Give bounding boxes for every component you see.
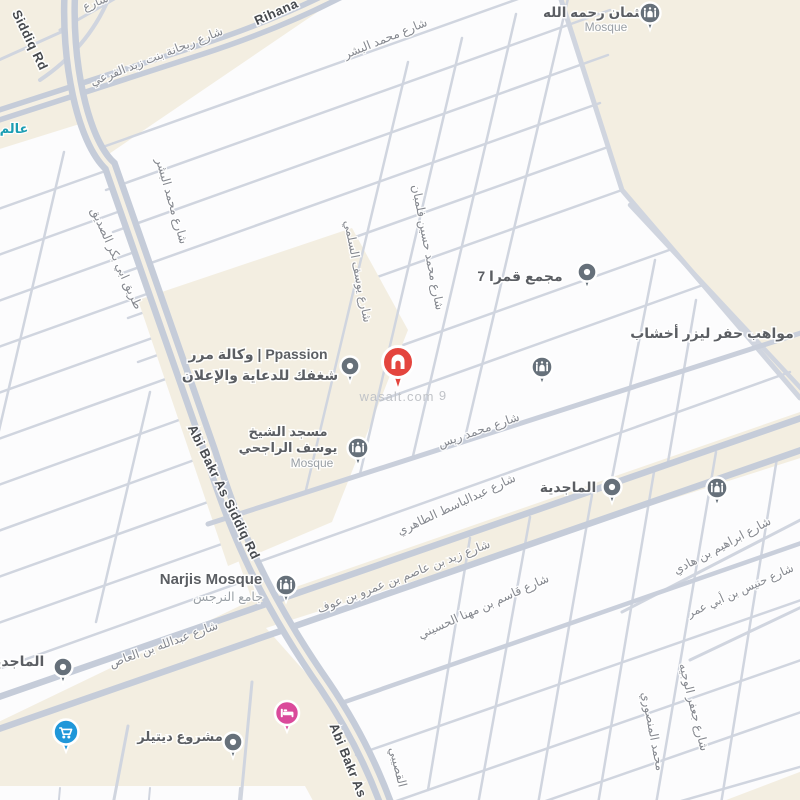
poi-label-majdiyah[interactable]: الماجدية: [540, 479, 597, 495]
wasalt-watermark: wasalt.com: [358, 389, 434, 404]
poi-label-mawaheb[interactable]: مواهب حفر ليزر أخشاب: [630, 324, 794, 342]
poi-label-alam-partial[interactable]: عالم: [0, 121, 28, 136]
poi-label-rajhi-1[interactable]: مسجد الشيخ: [248, 424, 327, 439]
poi-label-ppassion-2[interactable]: شغفك للدعاية والإعلان: [182, 367, 338, 384]
poi-label-ppassion-1[interactable]: وكالة مرر | Ppassion: [187, 346, 327, 363]
map-canvas[interactable]: شارع ريحانة بنت زيد الفرعي Rihana شارع S…: [0, 0, 800, 800]
poi-label-rajhi-2[interactable]: يوسف الراجحي: [239, 440, 338, 455]
poi-sublabel-rajhi[interactable]: Mosque: [291, 456, 334, 470]
poi-sublabel-othman-mosque[interactable]: Mosque: [585, 20, 628, 34]
poi-label-qamra[interactable]: مجمع قمرا 7: [477, 268, 562, 285]
poi-label-detailer[interactable]: مشروع ديتيلر: [136, 729, 223, 744]
poi-label-narjis-mosque[interactable]: Narjis Mosque: [160, 571, 263, 588]
poi-sublabel-narjis-mosque[interactable]: جامع النرجس: [193, 590, 263, 605]
poi-label-majdiyah-left[interactable]: الماجدية: [0, 653, 44, 669]
wasalt-watermark-2: 9: [439, 388, 447, 403]
